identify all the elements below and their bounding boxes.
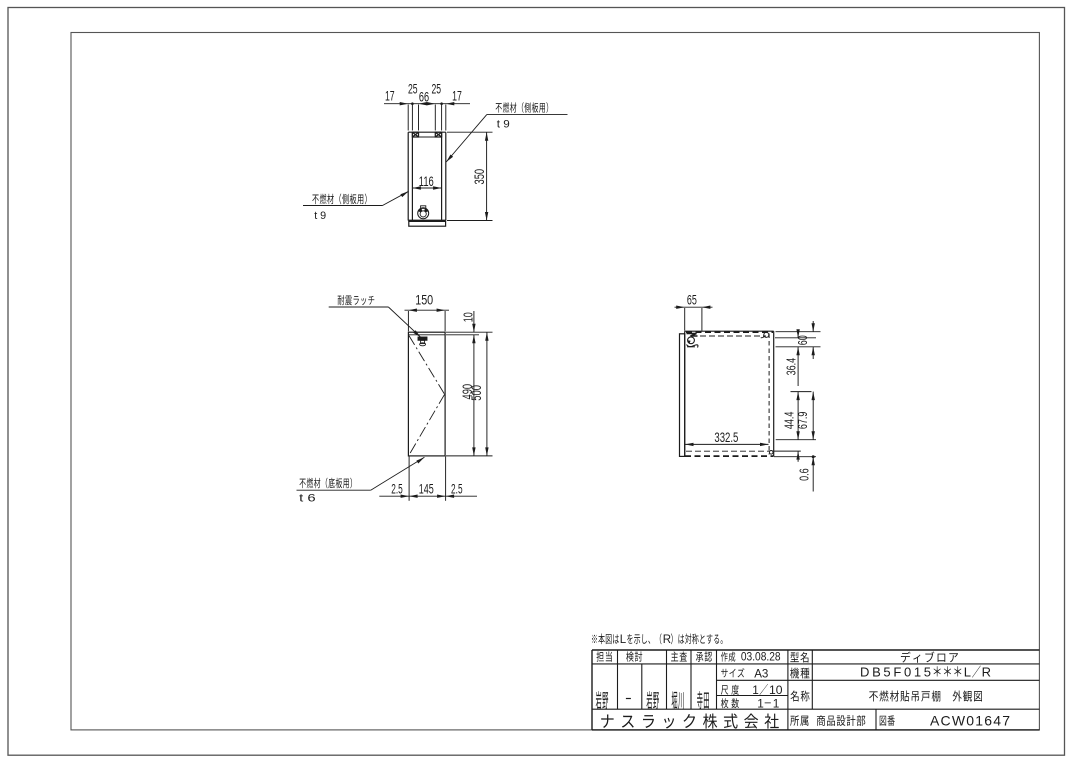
svg-text:10: 10 bbox=[461, 312, 475, 322]
svg-text:17: 17 bbox=[385, 88, 395, 103]
svg-text:ACW01647: ACW01647 bbox=[930, 713, 1010, 729]
svg-text:17: 17 bbox=[452, 88, 462, 103]
svg-text:25: 25 bbox=[408, 82, 418, 97]
svg-text:25: 25 bbox=[432, 82, 442, 97]
svg-text:67.9: 67.9 bbox=[796, 412, 810, 430]
svg-text:L: L bbox=[620, 634, 627, 646]
svg-text:44.4: 44.4 bbox=[783, 412, 797, 430]
svg-text:65: 65 bbox=[687, 292, 697, 307]
svg-text:145: 145 bbox=[419, 481, 434, 496]
svg-text:36.4: 36.4 bbox=[784, 358, 798, 376]
svg-text:L: L bbox=[964, 665, 971, 680]
svg-text:03.08.28: 03.08.28 bbox=[741, 649, 781, 663]
svg-text:150: 150 bbox=[415, 293, 433, 308]
svg-text:R: R bbox=[663, 634, 671, 646]
svg-text:A3: A3 bbox=[754, 667, 769, 681]
svg-text:66: 66 bbox=[419, 89, 429, 104]
svg-text:t 9: t 9 bbox=[497, 118, 510, 130]
svg-text:2.5: 2.5 bbox=[451, 482, 463, 497]
svg-text:500: 500 bbox=[469, 385, 484, 401]
svg-text:10: 10 bbox=[769, 683, 783, 697]
svg-text:t 6: t 6 bbox=[299, 492, 316, 504]
svg-text:116: 116 bbox=[419, 174, 434, 189]
svg-text:332.5: 332.5 bbox=[714, 430, 738, 445]
svg-text:2.5: 2.5 bbox=[391, 482, 403, 497]
svg-text:1: 1 bbox=[773, 696, 780, 710]
svg-text:0.6: 0.6 bbox=[798, 468, 812, 481]
svg-text:R: R bbox=[982, 665, 991, 680]
svg-text:1: 1 bbox=[757, 696, 764, 710]
svg-text:350: 350 bbox=[472, 169, 487, 185]
svg-text:1: 1 bbox=[752, 683, 759, 697]
svg-text:t 9: t 9 bbox=[314, 210, 326, 222]
